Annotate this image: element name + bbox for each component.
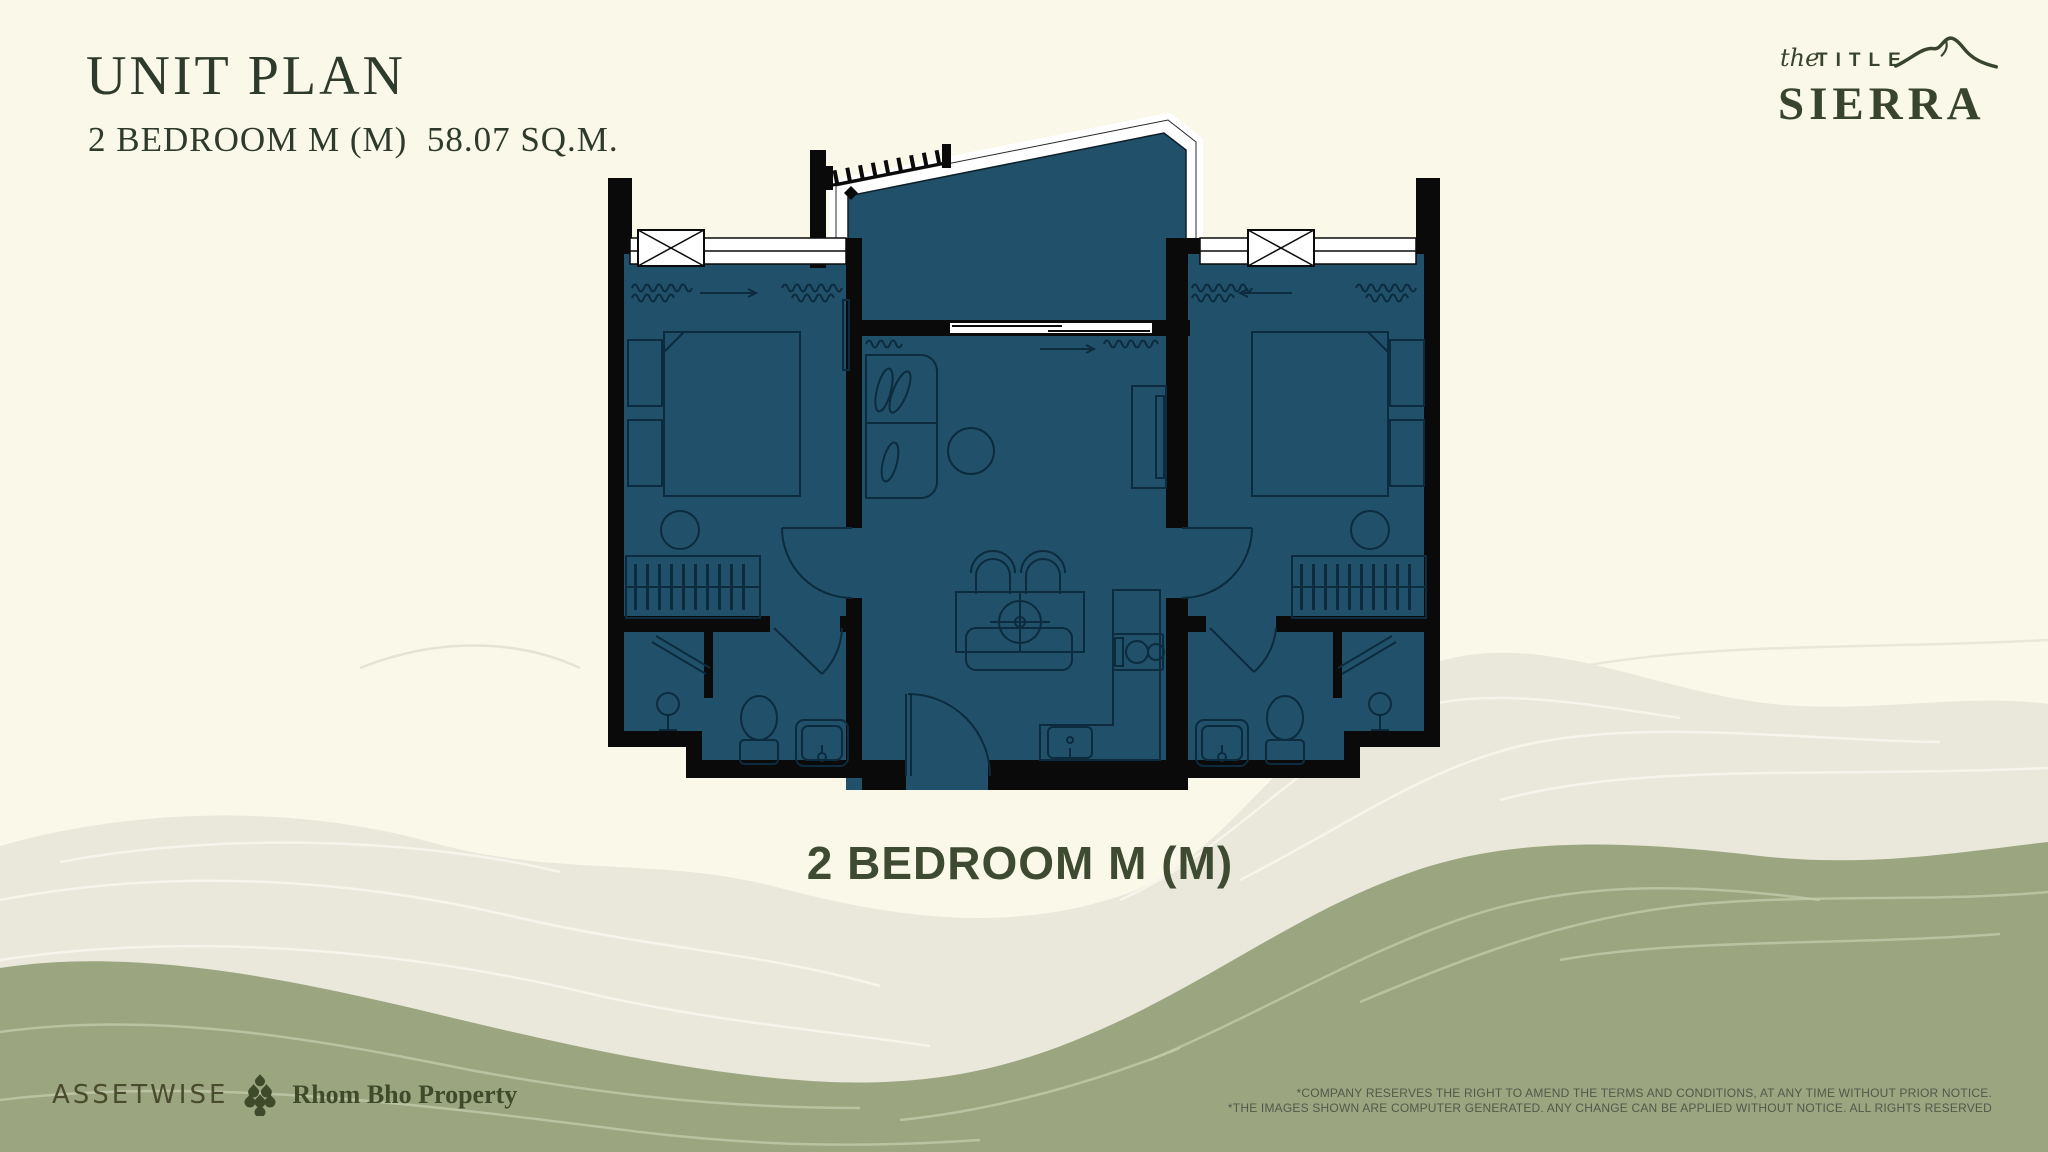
page-subtitle: 2 BEDROOM M (M) 58.07 SQ.M. <box>88 120 619 160</box>
page-title: UNIT PLAN <box>86 44 406 108</box>
ac-unit-left <box>638 230 704 266</box>
leaf-cluster-icon <box>244 1074 276 1116</box>
disclaimer: *COMPANY RESERVES THE RIGHT TO AMEND THE… <box>1228 1086 1992 1116</box>
balcony-sliding-door <box>950 323 1152 333</box>
unit-plan-page: UNIT PLAN 2 BEDROOM M (M) 58.07 SQ.M. th… <box>0 0 2048 1152</box>
brand-top-row: the TITLE <box>1772 36 1996 76</box>
plan-caption: 2 BEDROOM M (M) <box>620 836 1420 890</box>
partner-logo: Rhom Bho Property <box>292 1080 517 1110</box>
brand-script-text: the <box>1780 44 1819 72</box>
disclaimer-line-1: *COMPANY RESERVES THE RIGHT TO AMEND THE… <box>1228 1086 1992 1101</box>
assetwise-logo: ASSETWISE <box>52 1080 228 1110</box>
floor-plan <box>0 0 2048 1152</box>
bedroom-right-floor <box>1186 238 1440 778</box>
brand-logo: the TITLE SIERRA <box>1772 36 1996 131</box>
brand-name-text: SIERRA <box>1772 77 1996 131</box>
disclaimer-line-2: *THE IMAGES SHOWN ARE COMPUTER GENERATED… <box>1228 1101 1992 1116</box>
bedroom-left-floor <box>608 238 862 778</box>
footer-logos: ASSETWISE Rhom Bho Property <box>52 1074 517 1116</box>
mountain-icon <box>1894 32 1998 74</box>
ac-unit-right <box>1248 230 1314 266</box>
